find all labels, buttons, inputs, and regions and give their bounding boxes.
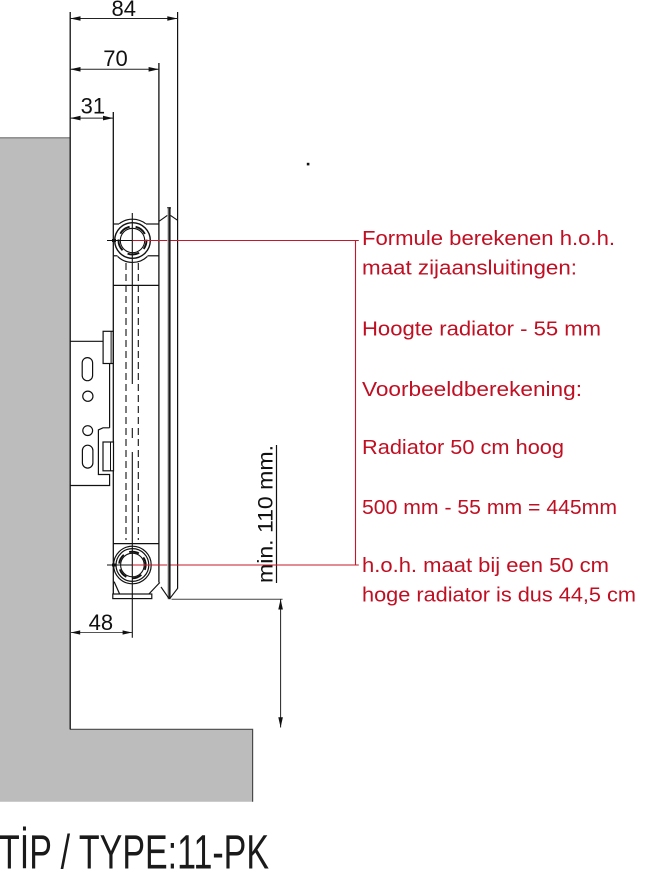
svg-text:31: 31	[81, 94, 105, 119]
svg-text:h.o.h. maat bij een 50 cm: h.o.h. maat bij een 50 cm	[362, 555, 609, 577]
svg-text:Hoogte radiator - 55 mm: Hoogte radiator - 55 mm	[362, 318, 601, 340]
svg-text:Radiator 50 cm hoog: Radiator 50 cm hoog	[362, 437, 564, 459]
svg-text:TİP / TYPE:11-PK: TİP / TYPE:11-PK	[0, 825, 269, 873]
svg-text:hoge radiator is dus 44,5 cm: hoge radiator is dus 44,5 cm	[362, 584, 636, 606]
svg-text:Formule berekenen h.o.h.: Formule berekenen h.o.h.	[362, 228, 615, 250]
svg-text:84: 84	[112, 0, 136, 21]
svg-text:500 mm - 55 mm = 445mm: 500 mm - 55 mm = 445mm	[362, 497, 617, 519]
svg-text:maat zijaansluitingen:: maat zijaansluitingen:	[362, 258, 577, 280]
svg-text:Voorbeeldberekening:: Voorbeeldberekening:	[362, 379, 582, 401]
svg-text:48: 48	[89, 610, 113, 635]
svg-text:70: 70	[103, 46, 127, 71]
svg-text:min. 110 mm.: min. 110 mm.	[255, 445, 278, 583]
